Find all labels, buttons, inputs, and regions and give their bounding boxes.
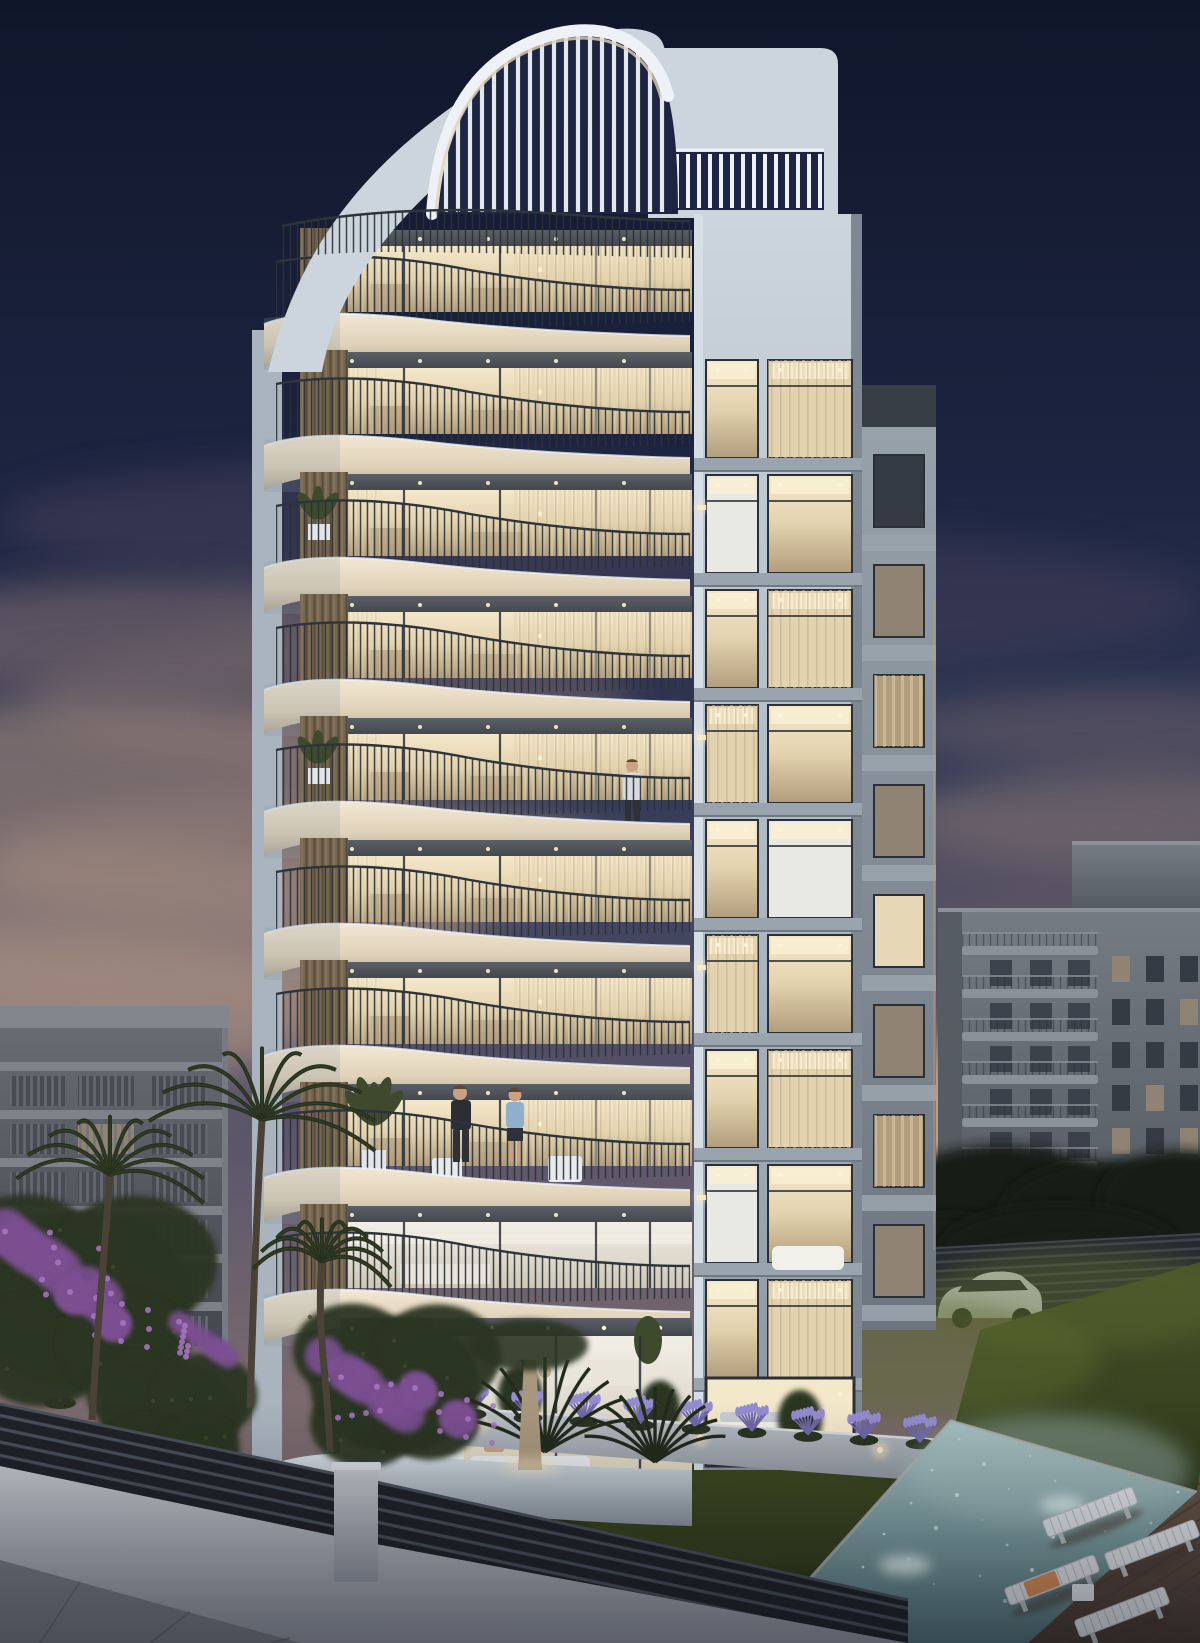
front-tower-floor: [694, 1280, 862, 1391]
flower-dot: [178, 1344, 184, 1350]
light-dot: [838, 1392, 843, 1397]
downlight: [350, 847, 354, 851]
ceiling-glow: [771, 823, 849, 839]
flower-dot: [144, 1344, 150, 1350]
downlight: [622, 847, 626, 851]
downlight: [622, 1091, 626, 1095]
leaf-highlight: [403, 1364, 407, 1368]
dusk-apartment-scene: [0, 0, 1200, 1643]
front-tower-floor: [694, 820, 862, 931]
floor-slab: [0, 1110, 228, 1119]
light-dot: [778, 1288, 782, 1292]
spandrel: [694, 688, 862, 701]
corner-highlight: [694, 214, 703, 1470]
downlight: [486, 969, 490, 973]
light-dot: [838, 368, 842, 372]
curtain: [768, 1280, 852, 1378]
flower-dot: [108, 1291, 114, 1297]
downlight: [418, 1213, 422, 1217]
light-dot: [744, 1288, 748, 1292]
window: [1146, 956, 1164, 982]
soffit: [300, 1206, 692, 1224]
flower-dot: [2, 1229, 8, 1235]
spandrel: [862, 1085, 936, 1101]
window: [1112, 999, 1130, 1025]
soffit: [300, 596, 692, 614]
balcony-floor-5: [264, 838, 692, 980]
sconce-glow: [694, 1190, 708, 1204]
flower-dot: [388, 1381, 394, 1387]
downlight: [622, 603, 626, 607]
balcony-railing: [962, 1019, 1098, 1032]
downlight: [622, 481, 626, 485]
light-dot: [778, 828, 782, 832]
leaf-highlight: [111, 1265, 115, 1269]
ceiling-glow: [709, 363, 755, 379]
woman-top: [506, 1102, 524, 1128]
ceiling-glow: [771, 478, 849, 494]
sconce-glow: [694, 960, 708, 974]
soffit: [300, 352, 692, 370]
downlight: [486, 481, 490, 485]
spandrel: [694, 1148, 862, 1161]
downlight: [350, 1213, 354, 1217]
light-dot: [744, 713, 748, 717]
downlight: [350, 725, 354, 729]
curtain: [768, 1050, 852, 1148]
soffit: [300, 474, 692, 492]
downlight: [486, 359, 490, 363]
side-tower-window: [874, 565, 924, 637]
balcony-floor-7: [264, 1075, 692, 1224]
light-dot: [778, 368, 782, 372]
balcony-slab: [962, 989, 1098, 998]
sconce-glow: [694, 730, 708, 744]
ceiling-glow: [709, 823, 755, 839]
window-louvers: [78, 1076, 134, 1106]
downlight: [486, 725, 490, 729]
light-dot: [744, 483, 748, 487]
balcony-floor-1: [264, 350, 692, 492]
light-dot: [716, 713, 720, 717]
bottom-vignette: [0, 1400, 1200, 1643]
leaf-highlight: [361, 1352, 365, 1356]
light-dot: [778, 483, 782, 487]
ceiling-glow: [771, 708, 849, 724]
downlight: [350, 359, 354, 363]
balcony-floor-3: [264, 594, 692, 736]
sconce-glow: [694, 500, 708, 514]
flower-dot: [183, 1354, 189, 1360]
side-tower-wall: [862, 390, 936, 1330]
spandrel: [694, 458, 862, 471]
flower-dot: [185, 1343, 191, 1349]
light-dot: [838, 713, 842, 717]
upper-block: [1072, 845, 1200, 915]
scene-root: [0, 0, 1200, 1643]
curtain: [768, 360, 852, 458]
window: [1112, 1042, 1130, 1068]
light-dot: [744, 828, 748, 832]
window: [1180, 1085, 1198, 1111]
spandrel: [862, 865, 936, 881]
light-dot: [778, 1173, 782, 1177]
spandrel: [862, 1305, 936, 1321]
flower-dot: [67, 1289, 73, 1295]
flower-mass: [206, 1339, 228, 1361]
balcony-railing: [962, 1062, 1098, 1075]
flower-dot: [43, 1292, 49, 1298]
balcony-floor-2: [264, 472, 692, 614]
curtain: [706, 705, 758, 803]
leaf-highlight: [350, 1327, 354, 1331]
flower-dot: [412, 1385, 418, 1391]
window: [1112, 1085, 1130, 1111]
side-tower-top-band: [862, 385, 936, 427]
flower-dot: [182, 1323, 188, 1329]
curtain: [874, 1115, 924, 1187]
flower-dot: [120, 1320, 126, 1326]
light-dot: [744, 598, 748, 602]
balcony-slab: [962, 1032, 1098, 1041]
left-building-floor: [0, 1110, 228, 1154]
light-dot: [778, 943, 782, 947]
spandrel: [862, 975, 936, 991]
downlight: [622, 725, 626, 729]
light-dot: [838, 1173, 842, 1177]
balcony-slab: [962, 1075, 1098, 1084]
window: [1180, 1042, 1198, 1068]
leaf-highlight: [58, 1228, 62, 1232]
window: [1146, 1128, 1164, 1154]
canopy: [468, 1319, 588, 1371]
downlight: [418, 725, 422, 729]
light-dot: [716, 1288, 720, 1292]
light-dot: [716, 1173, 720, 1177]
downlight: [622, 969, 626, 973]
downlight: [554, 603, 558, 607]
curtain: [706, 935, 758, 1033]
downlight: [418, 603, 422, 607]
spandrel: [862, 1195, 936, 1211]
ceiling-glow: [709, 1053, 755, 1069]
front-tower-floor: [694, 935, 862, 1046]
flower-dot: [438, 1391, 444, 1397]
flower-mass: [98, 1308, 132, 1342]
front-tower-floor: [694, 1050, 862, 1161]
flower-dot: [51, 1245, 57, 1251]
leaf-highlight: [5, 1367, 9, 1371]
architectural-render: [0, 0, 1200, 1643]
front-tower-floor: [694, 475, 862, 586]
light-dot: [716, 368, 720, 372]
light-dot: [838, 483, 842, 487]
downlight: [486, 847, 490, 851]
balcony-slab: [962, 946, 1098, 955]
downlight: [418, 847, 422, 851]
spandrel: [694, 1033, 862, 1046]
bed-silhouette: [772, 1246, 844, 1270]
curtain: [874, 675, 924, 747]
downlight: [350, 481, 354, 485]
balcony-railing: [962, 933, 1098, 946]
leaf-highlight: [392, 1339, 396, 1343]
interior-sofa: [560, 1360, 660, 1386]
light-dot: [744, 368, 748, 372]
downlight: [554, 481, 558, 485]
light-dot: [778, 713, 782, 717]
flower-dot: [47, 1230, 53, 1236]
spandrel: [694, 803, 862, 816]
downlight: [554, 1213, 558, 1217]
spandrel: [862, 535, 936, 551]
downlight: [418, 481, 422, 485]
flower-dot: [177, 1350, 183, 1356]
front-tower-floor: [694, 590, 862, 701]
flower-dot: [176, 1319, 182, 1325]
flower-mass: [326, 1353, 365, 1392]
downlight: [350, 603, 354, 607]
flower-dot: [145, 1307, 151, 1313]
light-dot: [716, 943, 720, 947]
balcony-railing: [962, 976, 1098, 989]
light-dot: [838, 943, 842, 947]
flower-dot: [374, 1384, 380, 1390]
soffit: [300, 718, 692, 736]
light-dot: [778, 1058, 782, 1062]
flower-mass: [59, 1281, 93, 1315]
ceiling-glow: [771, 938, 849, 954]
window: [1146, 1042, 1164, 1068]
soffit: [300, 840, 692, 858]
downlight: [554, 359, 558, 363]
light-dot: [716, 598, 720, 602]
downlight: [622, 1213, 626, 1217]
leaf-highlight: [208, 1396, 212, 1400]
downlight: [554, 725, 558, 729]
light-dot: [838, 828, 842, 832]
light-dot: [838, 1058, 842, 1062]
side-tower-window: [874, 1225, 924, 1297]
spandrel: [694, 573, 862, 586]
ceiling-glow: [709, 1168, 755, 1184]
light-dot: [778, 598, 782, 602]
balcony-slab: [962, 1118, 1098, 1127]
window: [1146, 1085, 1164, 1111]
balcony-floor-4: [264, 716, 692, 858]
light-dot: [744, 943, 748, 947]
front-tower-floor: [694, 705, 862, 816]
balcony-railing: [962, 1105, 1098, 1118]
window-louvers: [10, 1076, 66, 1106]
downlight: [486, 1091, 490, 1095]
ceiling-glow: [709, 478, 755, 494]
flower-dot: [119, 1301, 125, 1307]
flower-dot: [181, 1328, 187, 1334]
flower-dot: [184, 1348, 190, 1354]
side-tower-window: [874, 455, 924, 527]
downlight: [486, 1213, 490, 1217]
side-tower: [862, 385, 936, 1330]
window: [1146, 999, 1164, 1025]
flower-dot: [55, 1260, 61, 1266]
flower-dot: [179, 1339, 185, 1345]
balcony-floor-6: [264, 960, 692, 1102]
window: [1112, 956, 1130, 982]
flower-dot: [180, 1334, 186, 1340]
side-tower-window: [874, 1005, 924, 1077]
window: [1112, 1128, 1130, 1154]
downlight: [554, 847, 558, 851]
window: [1180, 956, 1198, 982]
spandrel: [862, 645, 936, 661]
ceiling-glow: [709, 593, 755, 609]
flower-dot: [39, 1277, 45, 1283]
ceiling-glow: [709, 1283, 755, 1299]
light-dot: [744, 1058, 748, 1062]
flower-dot: [146, 1326, 152, 1332]
light-dot: [838, 1288, 842, 1292]
flower-dot: [118, 1338, 124, 1344]
interior-plant: [634, 1316, 662, 1364]
leaf-highlight: [445, 1376, 449, 1380]
downlight: [602, 1326, 606, 1330]
light-dot: [838, 598, 842, 602]
spandrel: [694, 918, 862, 931]
downlight: [418, 1091, 422, 1095]
downlight: [418, 969, 422, 973]
side-tower-window: [874, 895, 924, 967]
front-tower-floor: [694, 360, 862, 471]
downlight: [554, 969, 558, 973]
downlight: [622, 359, 626, 363]
downlight: [554, 1091, 558, 1095]
window: [1180, 999, 1198, 1025]
spandrel: [862, 755, 936, 771]
downlight: [418, 359, 422, 363]
light-dot: [744, 1173, 748, 1177]
flower-mass: [8, 1228, 54, 1274]
soffit: [300, 962, 692, 980]
downlight: [350, 969, 354, 973]
leaf-highlight: [308, 1315, 312, 1319]
curtain: [768, 590, 852, 688]
light-dot: [716, 483, 720, 487]
side-tower-window: [874, 785, 924, 857]
light-dot: [716, 1058, 720, 1062]
light-dot: [716, 828, 720, 832]
flower-dot: [338, 1374, 344, 1380]
downlight: [486, 603, 490, 607]
ceiling-glow: [771, 1168, 849, 1184]
